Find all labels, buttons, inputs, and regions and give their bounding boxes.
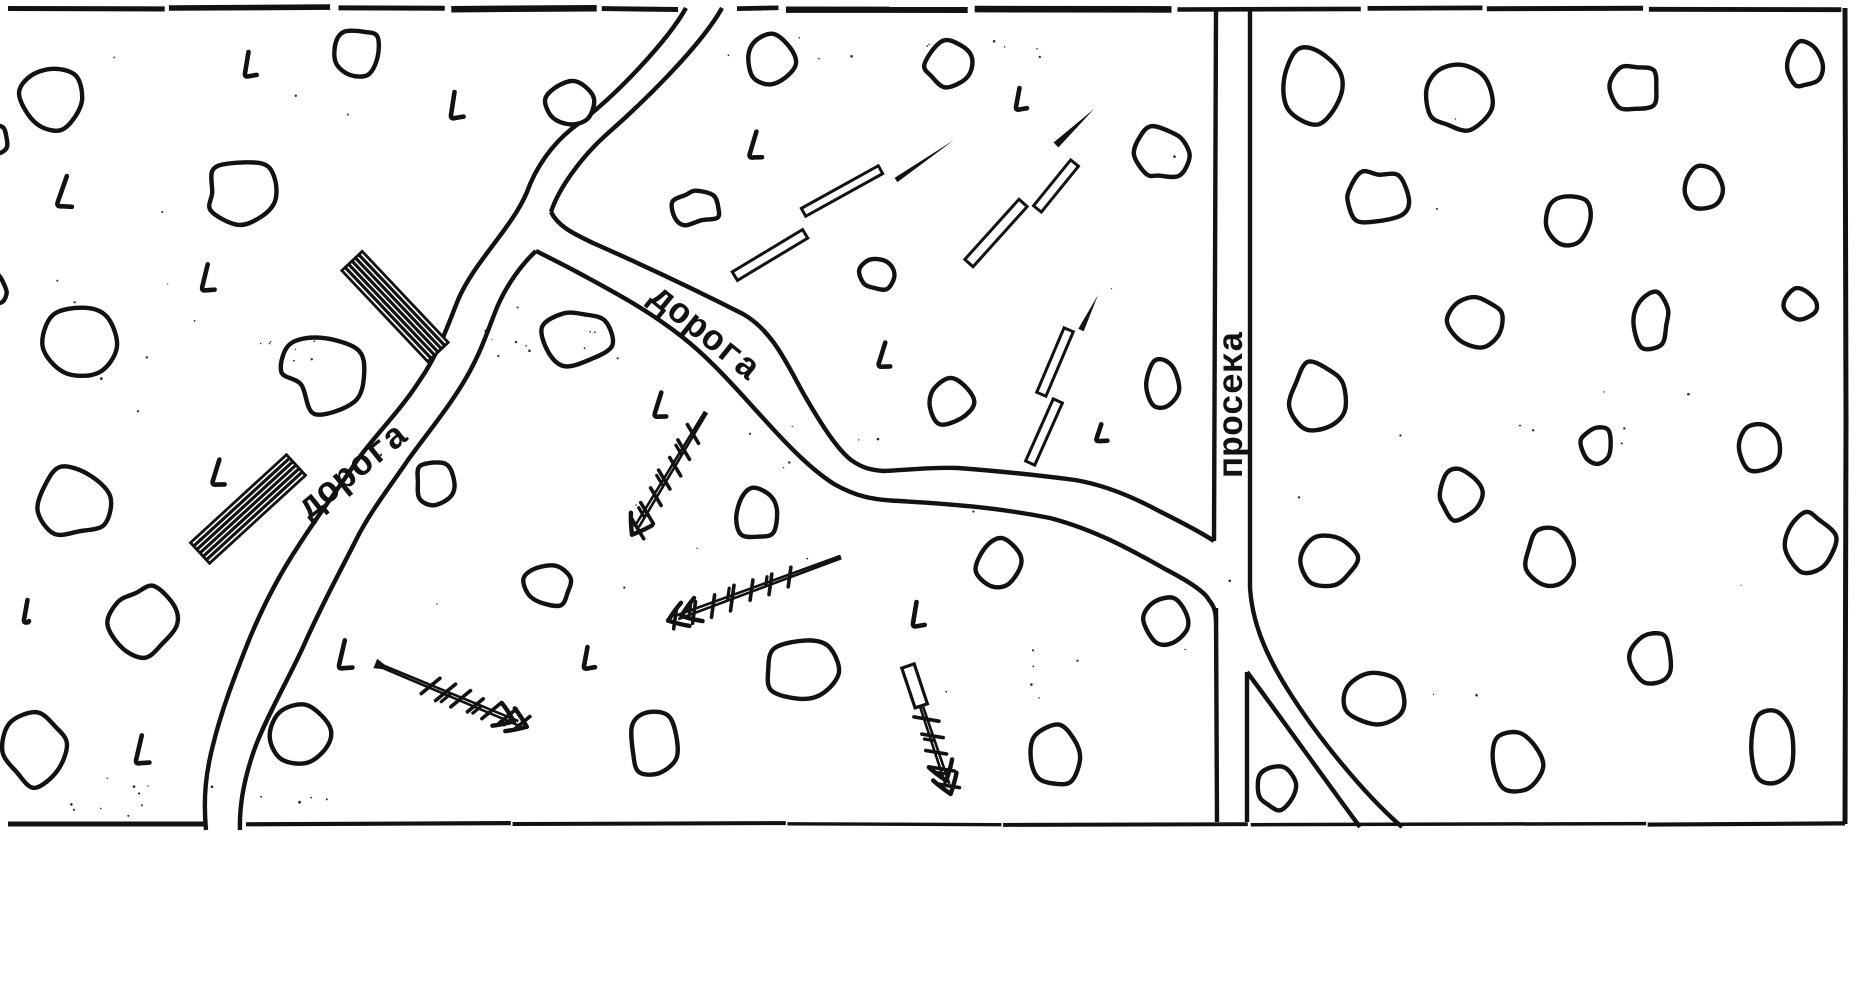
svg-text:просека: просека bbox=[1213, 331, 1253, 478]
